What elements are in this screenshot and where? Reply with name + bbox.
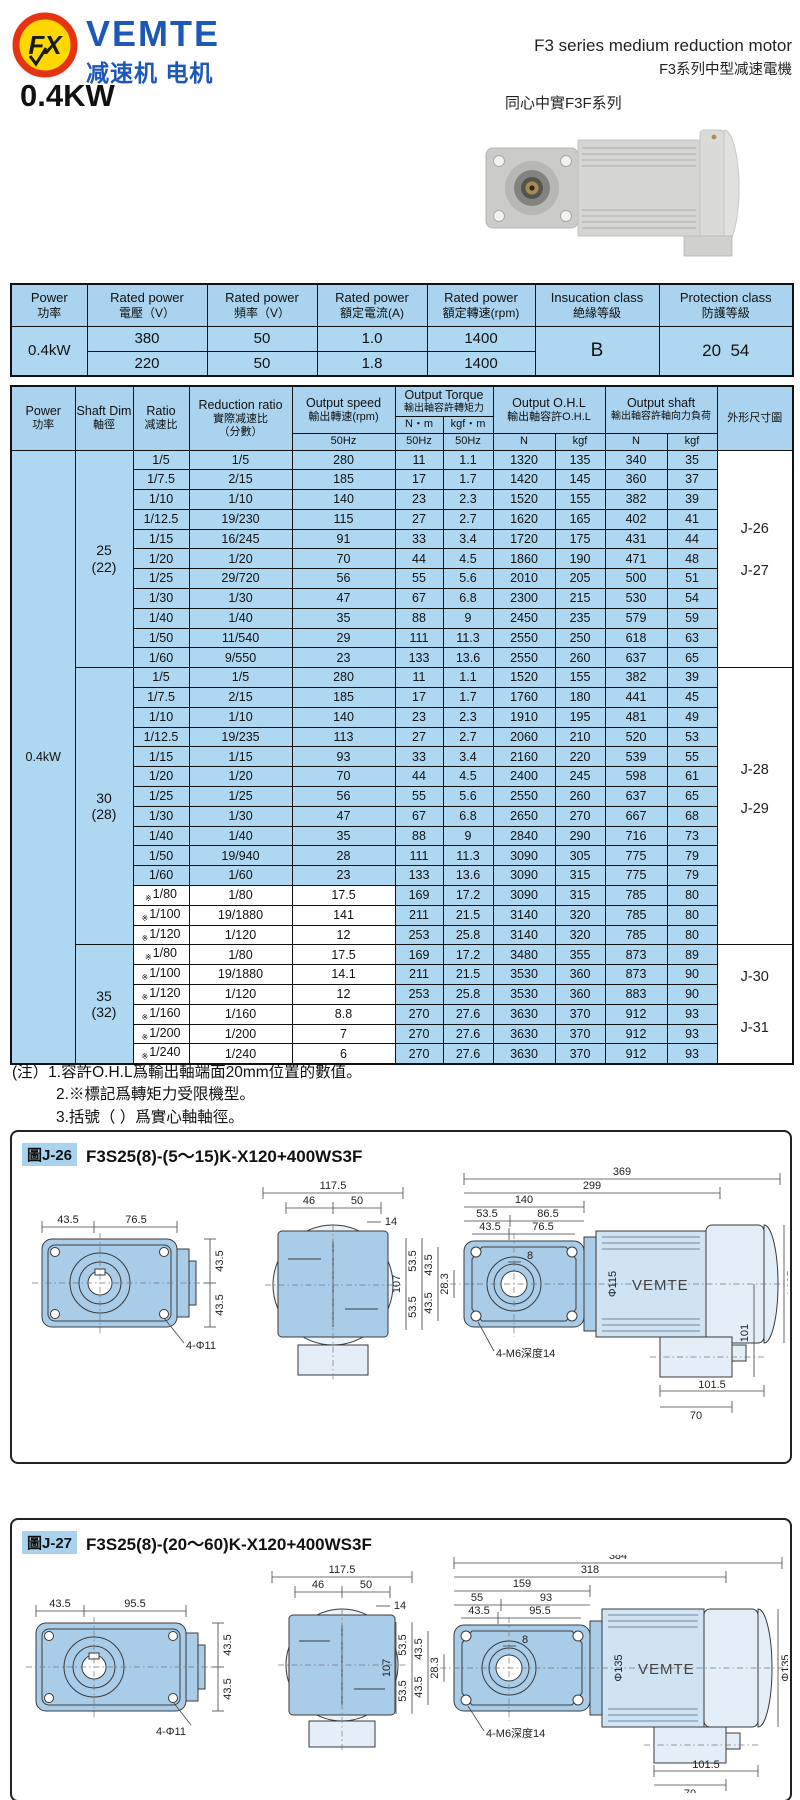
power-rating-table: Power功率 Rated power電壓（V） Rated power頻率（V… — [10, 283, 794, 377]
svg-text:Φ115: Φ115 — [607, 1271, 619, 1297]
svg-text:4-Φ11: 4-Φ11 — [186, 1340, 216, 1352]
cell-reduction: 1/80 — [189, 945, 292, 965]
cell-shaft-n: 382 — [605, 668, 667, 688]
cell-shaft-kgf: 45 — [667, 688, 717, 708]
cell-reduction: 1/10 — [189, 707, 292, 727]
cell-torque-nm: 88 — [395, 608, 443, 628]
cell-torque-kgfm: 17.2 — [443, 945, 493, 965]
cell-reduction: 1/40 — [189, 826, 292, 846]
cell-speed: 140 — [292, 707, 395, 727]
power-heading: 0.4KW — [20, 78, 115, 114]
cell-ohl-kgf: 320 — [555, 925, 605, 945]
diagram-j27-model: F3S25(8)-(20～60)K-X120+400WS3F — [86, 1530, 372, 1555]
cell-shaft-kgf: 79 — [667, 846, 717, 866]
cell-torque-nm: 67 — [395, 589, 443, 609]
cell-ratio: 1/20 — [133, 549, 189, 569]
svg-text:43.5: 43.5 — [468, 1605, 489, 1617]
cell-reduction: 1/20 — [189, 767, 292, 787]
cell-ohl-kgf: 370 — [555, 1004, 605, 1024]
col-speed: Rated power額定轉速(rpm) — [427, 284, 535, 326]
cell-ohl-kgf: 315 — [555, 866, 605, 886]
cell-torque-nm: 253 — [395, 985, 443, 1005]
power-value: 0.4kW — [11, 326, 87, 376]
svg-text:76.5: 76.5 — [125, 1214, 146, 1226]
cell-ratio: 1/25 — [133, 787, 189, 807]
figure-label: J-29 — [718, 802, 793, 817]
note-1: 1.容許O.H.L爲輸出軸端面20mm位置的數值。 — [48, 1064, 361, 1081]
cell-ohl-n: 2840 — [493, 826, 555, 846]
svg-text:VEMTE: VEMTE — [632, 1277, 689, 1294]
cell-reduction: 1/200 — [189, 1024, 292, 1044]
cell-torque-nm: 211 — [395, 905, 443, 925]
cell-torque-kgfm: 9 — [443, 608, 493, 628]
cell-shaft-kgf: 49 — [667, 707, 717, 727]
cell-ratio: 1/5 — [133, 668, 189, 688]
cell-shaft-kgf: 80 — [667, 925, 717, 945]
cell-ratio: 1/7.5 — [133, 688, 189, 708]
cell-shaft-kgf: 90 — [667, 965, 717, 985]
cell-ohl-kgf: 210 — [555, 727, 605, 747]
cell-torque-nm: 17 — [395, 688, 443, 708]
svg-text:299: 299 — [583, 1180, 601, 1192]
cell-ohl-n: 1860 — [493, 549, 555, 569]
cell-shaft-kgf: 89 — [667, 945, 717, 965]
current-1: 1.0 — [317, 326, 427, 351]
brand-name: VEMTE — [86, 16, 220, 52]
cell-ohl-n: 3530 — [493, 965, 555, 985]
svg-text:Φ135: Φ135 — [780, 1654, 788, 1681]
cell-ohl-n: 2550 — [493, 648, 555, 668]
cell-speed: 113 — [292, 727, 395, 747]
cell-speed: 17.5 — [292, 945, 395, 965]
svg-text:Φ135: Φ135 — [613, 1654, 625, 1681]
h-ohl-kgf: kgf — [555, 433, 605, 450]
spec-row: 30(28)1/51/5280111.1152015538239J-28J-29 — [11, 668, 793, 688]
cell-reduction: 1/120 — [189, 925, 292, 945]
svg-text:FX: FX — [28, 30, 63, 60]
diagram-j26: 圖J-26 F3S25(8)-(5～15)K-X120+400WS3F 43.5… — [10, 1130, 792, 1464]
cell-torque-nm: 67 — [395, 806, 443, 826]
cell-shaft-kgf: 63 — [667, 628, 717, 648]
cell-torque-kgfm: 4.5 — [443, 549, 493, 569]
cell-torque-kgfm: 25.8 — [443, 985, 493, 1005]
voltage-1: 380 — [87, 326, 207, 351]
cell-ohl-kgf: 180 — [555, 688, 605, 708]
cell-reduction: 19/1880 — [189, 965, 292, 985]
cell-ratio: 1/10 — [133, 707, 189, 727]
cell-shaft-n: 785 — [605, 905, 667, 925]
cell-figure: J-26J-27 — [717, 450, 793, 668]
cell-shaft-n: 579 — [605, 608, 667, 628]
cell-ohl-kgf: 305 — [555, 846, 605, 866]
col-protection: Protection class防護等級 — [659, 284, 793, 326]
cell-reduction: 9/550 — [189, 648, 292, 668]
cell-ohl-n: 1720 — [493, 529, 555, 549]
cell-ohl-kgf: 260 — [555, 648, 605, 668]
cell-reduction: 1/30 — [189, 806, 292, 826]
svg-text:117.5: 117.5 — [329, 1564, 356, 1576]
cell-shaft-kgf: 65 — [667, 648, 717, 668]
cell-ohl-n: 2060 — [493, 727, 555, 747]
cell-shaft-kgf: 80 — [667, 905, 717, 925]
diagram-j26-model: F3S25(8)-(5～15)K-X120+400WS3F — [86, 1142, 362, 1167]
h-output-shaft: Output shaft輸出軸容許軸向力負荷 — [605, 386, 717, 433]
j26-left-view: 43.5 76.5 43.5 43.5 4-Φ11 — [32, 1214, 226, 1352]
cell-reduction: 1/60 — [189, 866, 292, 886]
svg-text:53.5: 53.5 — [397, 1680, 409, 1701]
cell-torque-kgfm: 1.7 — [443, 688, 493, 708]
cell-shaft-n: 637 — [605, 648, 667, 668]
cell-ohl-kgf: 245 — [555, 767, 605, 787]
cell-reduction: 1/40 — [189, 608, 292, 628]
cell-shaft-kgf: 68 — [667, 806, 717, 826]
cell-ohl-kgf: 355 — [555, 945, 605, 965]
cell-shaft-n: 360 — [605, 470, 667, 490]
cell-shaft-n: 637 — [605, 787, 667, 807]
h-nm: N・m — [395, 416, 443, 433]
cell-reduction: 1/30 — [189, 589, 292, 609]
current-2: 1.8 — [317, 351, 427, 376]
cell-shaft-kgf: 61 — [667, 767, 717, 787]
cell-ohl-kgf: 165 — [555, 509, 605, 529]
svg-text:14: 14 — [394, 1600, 406, 1612]
svg-text:43.5: 43.5 — [222, 1678, 234, 1699]
cell-ratio: ※1/80 — [133, 886, 189, 906]
j27-middle-view: 117.5 46 50 14 — [272, 1564, 412, 1753]
notes-prefix: (注） — [12, 1064, 48, 1081]
cell-ohl-n: 2160 — [493, 747, 555, 767]
svg-text:Φ135: Φ135 — [786, 1270, 788, 1297]
cell-ohl-n: 3090 — [493, 866, 555, 886]
cell-shaft-n: 382 — [605, 490, 667, 510]
diagram-j27: 圖J-27 F3S25(8)-(20～60)K-X120+400WS3F 43.… — [10, 1518, 792, 1800]
cell-ratio: 1/30 — [133, 589, 189, 609]
cell-shaft-kgf: 41 — [667, 509, 717, 529]
svg-text:43.5: 43.5 — [413, 1676, 425, 1697]
svg-text:140: 140 — [515, 1194, 533, 1206]
cell-torque-kgfm: 3.4 — [443, 529, 493, 549]
cell-speed: 56 — [292, 569, 395, 589]
svg-text:53.5: 53.5 — [476, 1208, 497, 1220]
cell-ohl-n: 1760 — [493, 688, 555, 708]
cell-shaft-n: 785 — [605, 925, 667, 945]
cell-shaft-n: 598 — [605, 767, 667, 787]
cell-torque-kgfm: 27.6 — [443, 1024, 493, 1044]
cell-torque-nm: 27 — [395, 727, 443, 747]
cell-torque-kgfm: 11.3 — [443, 846, 493, 866]
j26-right-view: 369 299 140 53.5 86.5 43.5 76.5 8 — [391, 1167, 788, 1422]
cell-shaft-kgf: 48 — [667, 549, 717, 569]
svg-text:4-M6深度14: 4-M6深度14 — [496, 1346, 555, 1360]
cell-ohl-kgf: 290 — [555, 826, 605, 846]
cell-shaft-kgf: 93 — [667, 1044, 717, 1064]
cell-speed: 280 — [292, 450, 395, 470]
cell-torque-nm: 23 — [395, 490, 443, 510]
voltage-2: 220 — [87, 351, 207, 376]
cell-ratio: ※1/120 — [133, 925, 189, 945]
cell-reduction: 2/15 — [189, 688, 292, 708]
cell-shaft-kgf: 79 — [667, 866, 717, 886]
h-power: Power功率 — [11, 386, 75, 450]
cell-shaft-kgf: 53 — [667, 727, 717, 747]
cell-ohl-kgf: 205 — [555, 569, 605, 589]
cell-shaft-kgf: 65 — [667, 787, 717, 807]
cell-speed: 23 — [292, 866, 395, 886]
svg-text:101: 101 — [739, 1324, 751, 1342]
cell-ohl-kgf: 190 — [555, 549, 605, 569]
cell-torque-kgfm: 27.6 — [443, 1004, 493, 1024]
note-2: 2.※標記爲轉矩力受限機型。 — [12, 1084, 362, 1106]
svg-text:70: 70 — [690, 1410, 702, 1422]
cell-ohl-kgf: 250 — [555, 628, 605, 648]
cell-torque-kgfm: 17.2 — [443, 886, 493, 906]
cell-shaft-kgf: 37 — [667, 470, 717, 490]
cell-ohl-n: 1320 — [493, 450, 555, 470]
cell-reduction: 19/235 — [189, 727, 292, 747]
cell-torque-kgfm: 2.7 — [443, 509, 493, 529]
cell-ohl-kgf: 145 — [555, 470, 605, 490]
cell-reduction: 11/540 — [189, 628, 292, 648]
cell-ratio: ※1/100 — [133, 965, 189, 985]
cell-speed: 12 — [292, 925, 395, 945]
h-figure: 外形尺寸圖 — [717, 386, 793, 450]
j27-right-view: 384 318 159 55 93 43.5 95.5 8 — [381, 1555, 788, 1793]
cell-torque-nm: 270 — [395, 1044, 443, 1064]
cell-shaft-kgf: 90 — [667, 985, 717, 1005]
cell-torque-kgfm: 27.6 — [443, 1044, 493, 1064]
h-hz-nm: 50Hz — [395, 433, 443, 450]
cell-ratio: 1/25 — [133, 569, 189, 589]
cell-torque-nm: 133 — [395, 866, 443, 886]
cell-shaft-kgf: 39 — [667, 490, 717, 510]
cell-ratio: ※1/160 — [133, 1004, 189, 1024]
cell-reduction: 19/940 — [189, 846, 292, 866]
spec-row: 35(32)※1/801/8017.516917.2348035587389J-… — [11, 945, 793, 965]
cell-shaft-n: 402 — [605, 509, 667, 529]
cell-shaft-dim: 30(28) — [75, 668, 133, 945]
cell-speed: 14.1 — [292, 965, 395, 985]
note-3: 3.括號（ ）爲實心軸軸徑。 — [12, 1107, 362, 1129]
cell-torque-nm: 253 — [395, 925, 443, 945]
cell-shaft-n: 520 — [605, 727, 667, 747]
cell-shaft-n: 912 — [605, 1024, 667, 1044]
svg-text:95.5: 95.5 — [124, 1598, 145, 1610]
cell-ratio: ※1/80 — [133, 945, 189, 965]
h-ratio: Ratio减速比 — [133, 386, 189, 450]
freq-1: 50 — [207, 326, 317, 351]
cell-ohl-kgf: 370 — [555, 1044, 605, 1064]
cell-torque-nm: 23 — [395, 707, 443, 727]
svg-text:43.5: 43.5 — [479, 1221, 500, 1233]
svg-text:55: 55 — [471, 1592, 483, 1604]
svg-text:43.5: 43.5 — [423, 1292, 435, 1313]
star-mark: ※ — [142, 1033, 149, 1042]
cell-speed: 47 — [292, 589, 395, 609]
cell-ohl-kgf: 195 — [555, 707, 605, 727]
star-mark: ※ — [145, 953, 152, 962]
cell-torque-kgfm: 1.7 — [443, 470, 493, 490]
cell-shaft-kgf: 59 — [667, 608, 717, 628]
cell-ohl-n: 2450 — [493, 608, 555, 628]
svg-text:76.5: 76.5 — [532, 1221, 553, 1233]
cell-ohl-n: 2550 — [493, 787, 555, 807]
h-shaft-n: N — [605, 433, 667, 450]
cell-reduction: 1/10 — [189, 490, 292, 510]
svg-text:8: 8 — [527, 1250, 533, 1262]
cell-shaft-n: 530 — [605, 589, 667, 609]
cell-ohl-n: 2400 — [493, 767, 555, 787]
figure-label: J-28 — [718, 763, 793, 778]
cell-shaft-n: 912 — [605, 1004, 667, 1024]
cell-torque-kgfm: 1.1 — [443, 668, 493, 688]
svg-text:117.5: 117.5 — [320, 1180, 347, 1192]
cell-reduction: 2/15 — [189, 470, 292, 490]
cell-ohl-kgf: 135 — [555, 450, 605, 470]
svg-text:46: 46 — [303, 1195, 315, 1207]
h-shaft-kgf: kgf — [667, 433, 717, 450]
cell-ratio: 1/10 — [133, 490, 189, 510]
h-reduction: Reduction ratio實際减速比（分數） — [189, 386, 292, 450]
cell-ratio: 1/50 — [133, 628, 189, 648]
cell-reduction: 1/160 — [189, 1004, 292, 1024]
cell-ohl-n: 3530 — [493, 985, 555, 1005]
cell-shaft-n: 340 — [605, 450, 667, 470]
cell-ohl-n: 3140 — [493, 905, 555, 925]
cell-shaft-kgf: 51 — [667, 569, 717, 589]
figure-label: J-30 — [718, 970, 793, 985]
cell-ohl-n: 2300 — [493, 589, 555, 609]
cell-shaft-kgf: 54 — [667, 589, 717, 609]
diagram-j27-tag: 圖J-27 — [22, 1531, 77, 1554]
figure-label: J-26 — [718, 522, 793, 537]
cell-reduction: 19/230 — [189, 509, 292, 529]
cell-shaft-n: 716 — [605, 826, 667, 846]
cell-ohl-kgf: 320 — [555, 905, 605, 925]
notes: (注）1.容許O.H.L爲輸出軸端面20mm位置的數值。 2.※標記爲轉矩力受限… — [12, 1062, 362, 1129]
cell-ohl-kgf: 155 — [555, 490, 605, 510]
cell-ohl-kgf: 175 — [555, 529, 605, 549]
cell-torque-kgfm: 5.6 — [443, 787, 493, 807]
cell-torque-kgfm: 3.4 — [443, 747, 493, 767]
cell-torque-nm: 44 — [395, 549, 443, 569]
svg-text:28.3: 28.3 — [439, 1273, 451, 1294]
cell-torque-nm: 211 — [395, 965, 443, 985]
cell-speed: 93 — [292, 747, 395, 767]
diagram-j26-drawing: 43.5 76.5 43.5 43.5 4-Φ11 — [12, 1167, 788, 1459]
svg-text:95.5: 95.5 — [529, 1605, 550, 1617]
cell-ohl-n: 1910 — [493, 707, 555, 727]
cell-ohl-n: 3090 — [493, 846, 555, 866]
cell-ohl-n: 3090 — [493, 886, 555, 906]
cell-shaft-kgf: 39 — [667, 668, 717, 688]
diagram-j27-drawing: 43.5 95.5 43.5 43.5 4-Φ11 — [12, 1555, 788, 1793]
star-mark: ※ — [142, 993, 149, 1002]
product-photo — [478, 110, 740, 263]
h-kgfm: kgf・m — [443, 416, 493, 433]
cell-torque-nm: 11 — [395, 668, 443, 688]
cell-speed: 70 — [292, 549, 395, 569]
cell-torque-nm: 133 — [395, 648, 443, 668]
cell-shaft-n: 873 — [605, 945, 667, 965]
cell-torque-nm: 33 — [395, 747, 443, 767]
cell-torque-nm: 17 — [395, 470, 443, 490]
star-mark: ※ — [142, 973, 149, 982]
svg-text:43.5: 43.5 — [57, 1214, 78, 1226]
cell-torque-nm: 27 — [395, 509, 443, 529]
cell-speed: 35 — [292, 608, 395, 628]
cell-shaft-n: 775 — [605, 846, 667, 866]
cell-torque-kgfm: 4.5 — [443, 767, 493, 787]
svg-text:93: 93 — [540, 1592, 552, 1604]
cell-torque-nm: 88 — [395, 826, 443, 846]
cell-shaft-dim: 25(22) — [75, 450, 133, 668]
cell-shaft-n: 667 — [605, 806, 667, 826]
svg-text:101.5: 101.5 — [698, 1379, 726, 1391]
svg-text:8: 8 — [522, 1634, 528, 1646]
svg-text:43.5: 43.5 — [413, 1638, 425, 1659]
freq-2: 50 — [207, 351, 317, 376]
cell-torque-nm: 44 — [395, 767, 443, 787]
cell-speed: 17.5 — [292, 886, 395, 906]
cell-torque-nm: 270 — [395, 1024, 443, 1044]
cell-speed: 47 — [292, 806, 395, 826]
figure-label: J-27 — [718, 564, 793, 579]
cell-shaft-n: 775 — [605, 866, 667, 886]
cell-shaft-kgf: 55 — [667, 747, 717, 767]
cell-shaft-n: 441 — [605, 688, 667, 708]
cell-torque-nm: 11 — [395, 450, 443, 470]
cell-ohl-n: 2650 — [493, 806, 555, 826]
cell-speed: 280 — [292, 668, 395, 688]
cell-torque-kgfm: 9 — [443, 826, 493, 846]
svg-text:107: 107 — [391, 1275, 403, 1293]
cell-torque-nm: 270 — [395, 1004, 443, 1024]
speed-2: 1400 — [427, 351, 535, 376]
svg-text:46: 46 — [312, 1579, 324, 1591]
svg-text:50: 50 — [351, 1195, 363, 1207]
cell-reduction: 1/15 — [189, 747, 292, 767]
cell-speed: 185 — [292, 688, 395, 708]
cell-torque-nm: 55 — [395, 787, 443, 807]
cell-ohl-kgf: 360 — [555, 965, 605, 985]
cell-ohl-kgf: 260 — [555, 787, 605, 807]
cell-speed: 23 — [292, 648, 395, 668]
svg-text:43.5: 43.5 — [214, 1294, 226, 1315]
cell-figure: J-30J-31 — [717, 945, 793, 1064]
svg-text:43.5: 43.5 — [49, 1598, 70, 1610]
svg-text:53.5: 53.5 — [407, 1296, 419, 1317]
h-speed: Output speed輸出轉速(rpm) — [292, 386, 395, 433]
cell-ratio: ※1/120 — [133, 985, 189, 1005]
cell-torque-kgfm: 13.6 — [443, 648, 493, 668]
cell-torque-kgfm: 13.6 — [443, 866, 493, 886]
cell-speed: 115 — [292, 509, 395, 529]
cell-torque-kgfm: 1.1 — [443, 450, 493, 470]
svg-text:384: 384 — [609, 1555, 627, 1562]
h-hz-speed: 50Hz — [292, 433, 395, 450]
cell-ratio: 1/60 — [133, 866, 189, 886]
col-power: Power功率 — [11, 284, 87, 326]
cell-ratio: ※1/200 — [133, 1024, 189, 1044]
cell-ohl-n: 3630 — [493, 1024, 555, 1044]
star-mark: ※ — [142, 934, 149, 943]
cell-speed: 56 — [292, 787, 395, 807]
cell-reduction: 1/25 — [189, 787, 292, 807]
svg-text:43.5: 43.5 — [222, 1634, 234, 1655]
svg-text:14: 14 — [385, 1216, 397, 1228]
cell-shaft-kgf: 80 — [667, 886, 717, 906]
col-current: Rated power額定電流(A) — [317, 284, 427, 326]
